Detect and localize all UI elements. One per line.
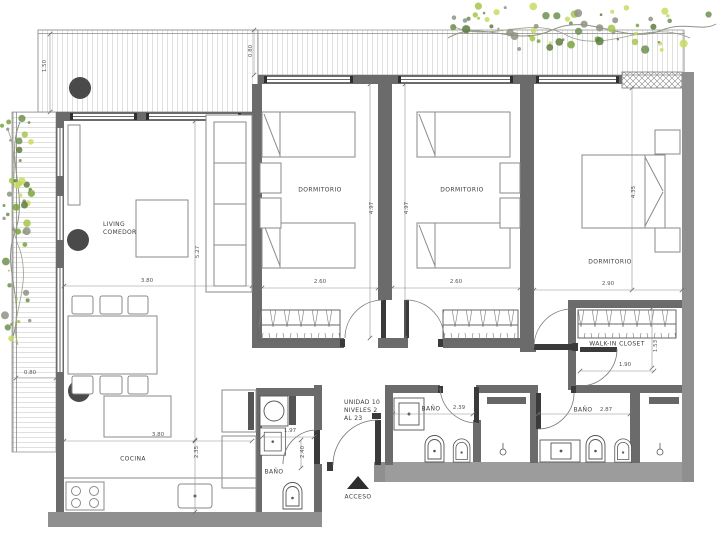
label-cocina: COCINA [120, 456, 146, 463]
column-icon [67, 229, 89, 251]
label-dormitorio-1: DORMITORIO [298, 187, 342, 194]
shower-shelf-icon [487, 397, 679, 404]
dim-living-width: 3.80 [141, 278, 153, 284]
dim-terrace-top-left: 1.50 [42, 60, 48, 72]
bidet-icon [615, 439, 632, 462]
column-icon [69, 77, 91, 99]
label-dormitorio-3: DORMITORIO [588, 259, 632, 266]
console-icon [68, 125, 80, 205]
vanity-icon [540, 440, 580, 462]
dim-dorm2-depth: 4.97 [404, 202, 410, 214]
label-dormitorio-2: DORMITORIO [440, 187, 484, 194]
stove-icon [66, 482, 104, 510]
terrace-hatch [38, 30, 684, 112]
dim-bano3-width: 2.87 [600, 407, 612, 413]
bed-icon [262, 223, 355, 268]
toilet-icon [425, 436, 444, 462]
bed-icon [262, 112, 355, 157]
unit-info-line1: UNIDAD 10 [344, 399, 380, 406]
balcony-hatch [12, 112, 56, 452]
floor-plan: LIVING COMEDOR DORMITORIO DORMITORIO DOR… [0, 0, 720, 540]
toilet-icon [586, 436, 605, 462]
dim-dorm3-depth: 4.35 [631, 186, 637, 198]
dim-terrace-top-right: 0.80 [248, 45, 254, 57]
fixtures-group [260, 396, 679, 509]
label-walkin-closet: WALK-IN CLOSET [589, 341, 645, 348]
bed-icon [417, 223, 510, 268]
acceso-arrow-icon [347, 476, 369, 489]
kitchen-cabinet-icon [222, 390, 256, 488]
dim-bano-servicio-depth: 2.40 [300, 446, 306, 458]
closet-icon [258, 310, 676, 340]
bed-icon [582, 155, 665, 228]
dining-set-icon [68, 296, 157, 394]
dim-dorm1-depth: 4.97 [369, 202, 375, 214]
label-living-line2: COMEDOR [103, 229, 137, 236]
bidet-icon [453, 439, 470, 462]
sofa-icon [206, 115, 252, 292]
label-living-line1: LIVING [103, 221, 125, 228]
washer-icon [260, 396, 296, 426]
dim-bano2-width: 2.39 [453, 405, 465, 411]
dim-walkin-width: 1.90 [619, 362, 631, 368]
coffee-table-icon [136, 200, 188, 257]
unit-info-line2: NIVELES 2 [344, 407, 378, 414]
dim-dorm3-width: 2.90 [602, 281, 614, 287]
label-bano-2: BAÑO [421, 406, 440, 413]
label-bano-3: BAÑO [573, 407, 592, 414]
dim-bano-servicio-width: 1.97 [284, 428, 296, 434]
kitchen-island-icon [104, 396, 171, 437]
dim-balcony-left: 0.80 [24, 370, 36, 376]
dim-walkin-depth: 1.53 [653, 340, 659, 352]
unit-info-line3: AL 23 [344, 415, 363, 422]
label-bano-servicio: BAÑO [264, 469, 283, 476]
toilet-icon [283, 483, 302, 509]
dim-dorm2-width: 2.60 [450, 279, 462, 285]
dim-cocina-width: 3.80 [152, 432, 164, 438]
floor-plan-drawing [0, 0, 720, 540]
bed-icon [417, 112, 510, 157]
dim-dorm1-width: 2.60 [314, 279, 326, 285]
sink-icon [260, 428, 286, 455]
label-acceso: ACCESO [344, 494, 371, 501]
dim-living-depth: 5.27 [195, 246, 201, 258]
dim-cocina-depth: 2.35 [194, 446, 200, 458]
